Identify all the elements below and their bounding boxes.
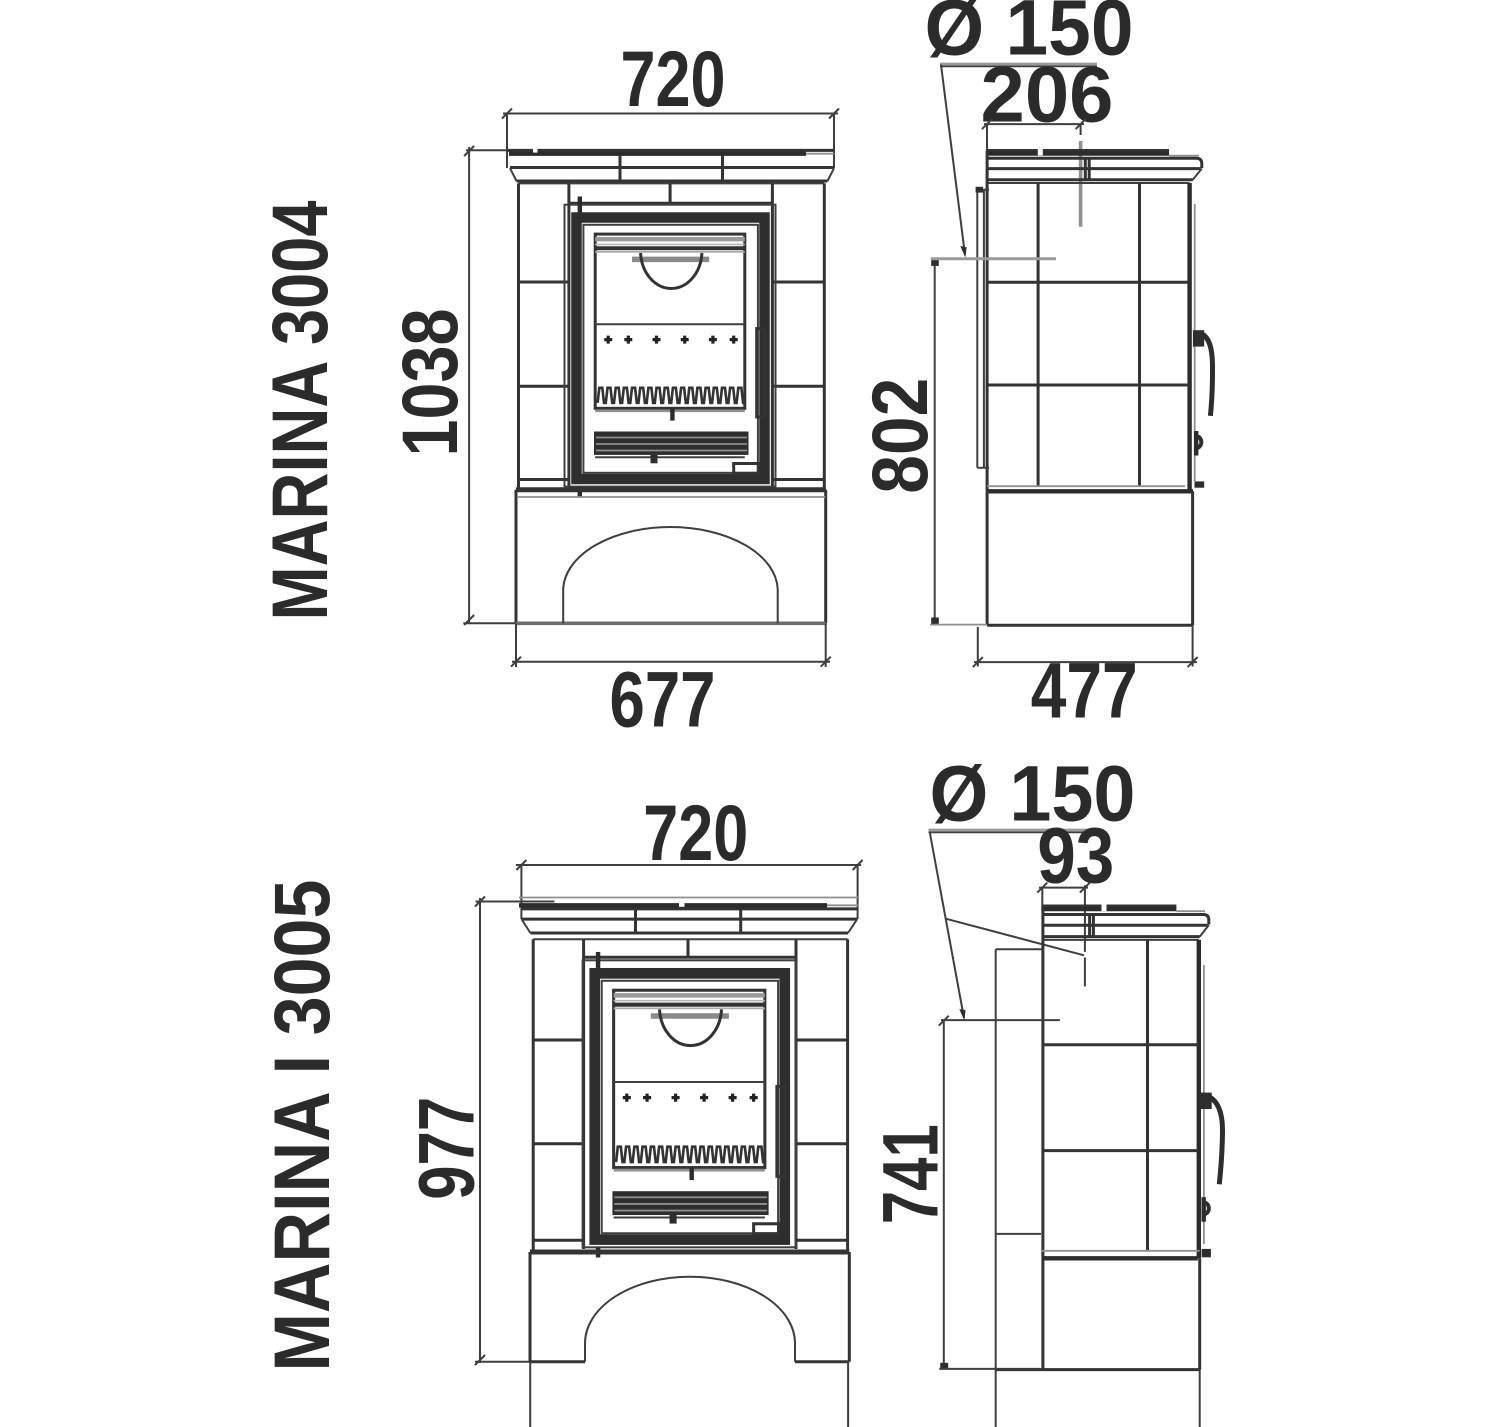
svg-text:977: 977 — [401, 1097, 490, 1200]
svg-text:477: 477 — [1031, 646, 1138, 735]
svg-text:MARINA I 3005: MARINA I 3005 — [257, 880, 346, 1372]
svg-text:206: 206 — [981, 50, 1114, 139]
svg-text:741: 741 — [866, 1124, 955, 1224]
svg-text:677: 677 — [610, 655, 716, 744]
svg-text:802: 802 — [855, 378, 944, 494]
svg-text:720: 720 — [621, 34, 726, 123]
svg-text:1038: 1038 — [385, 309, 474, 457]
svg-text:MARINA 3004: MARINA 3004 — [255, 200, 344, 620]
svg-text:720: 720 — [643, 788, 748, 877]
svg-text:93: 93 — [1037, 811, 1114, 900]
